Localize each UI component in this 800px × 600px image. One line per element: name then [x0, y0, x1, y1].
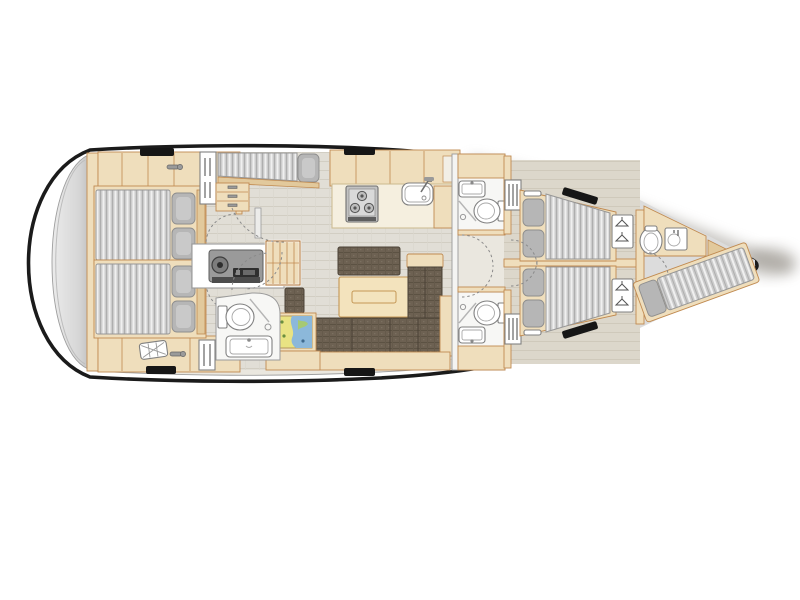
faucet-base: [424, 177, 434, 181]
utility-wall: [255, 208, 261, 238]
pillow: [523, 300, 544, 327]
stove-controls: [348, 217, 376, 221]
galley: [330, 150, 460, 228]
corridor-wall: [458, 230, 505, 235]
salon-table: [339, 277, 409, 317]
shelf-tray: [524, 330, 541, 335]
sofa-armrest: [407, 254, 443, 268]
winch-handle-icon: [167, 164, 183, 169]
wardrobe: [612, 215, 633, 248]
faucet-icon: [247, 338, 251, 342]
sofa-bottom: [316, 318, 442, 353]
hanging-locker: [199, 340, 215, 370]
bathroom-sink: [226, 336, 272, 357]
bow-sink: [665, 228, 687, 250]
pillow-highlight: [176, 197, 191, 220]
hanging-locker: [200, 152, 216, 204]
bathroom-sink: [459, 327, 485, 343]
boarding-ladder-icon: [139, 340, 168, 360]
chart-mark: [280, 320, 283, 323]
bathroom-sink: [459, 181, 485, 197]
head-shelf: [458, 154, 505, 178]
deck-hatch: [344, 147, 375, 155]
toilet-icon: [474, 199, 505, 223]
chart-map: [276, 316, 312, 348]
single-berth-mattress: [218, 153, 297, 181]
chart-mark: [301, 339, 304, 342]
pillow-highlight: [302, 158, 315, 178]
galley-lockers: [330, 150, 460, 186]
salon-bottom-cabinet: [300, 352, 450, 370]
stove: [346, 186, 378, 222]
drawer-handle: [228, 195, 237, 197]
bench-settee: [338, 247, 400, 275]
drawer-handle: [228, 204, 237, 206]
deck-hatch: [146, 366, 176, 374]
floorplan-svg: Sailing yacht interior layout plan, top …: [0, 0, 800, 600]
shelf-tray: [524, 191, 541, 196]
toilet-icon: [474, 301, 505, 325]
faucet-icon: [470, 339, 473, 342]
drawer-handle: [228, 186, 237, 188]
pillow-highlight: [176, 305, 191, 328]
wardrobe: [612, 279, 633, 312]
fwd-head-starboard: [458, 292, 505, 370]
deck-hatch: [140, 148, 174, 156]
pillow-highlight: [176, 232, 191, 255]
yacht-floorplan-canvas: Sailing yacht interior layout plan, top …: [0, 0, 800, 600]
companionway: [266, 241, 300, 285]
winch-handle-icon: [170, 351, 186, 356]
main-bulkhead: [452, 154, 458, 370]
toilet-icon: [218, 304, 254, 330]
stool: [285, 288, 304, 313]
double-bed-mattress: [96, 264, 170, 334]
pillow: [523, 199, 544, 226]
engine: [209, 250, 263, 283]
chart-water-area: [291, 316, 312, 348]
faucet-icon: [470, 181, 473, 184]
chart-mark: [282, 334, 285, 337]
deck-hatch: [344, 368, 375, 376]
fwd-head-port: [458, 154, 505, 232]
double-bed-mattress: [96, 190, 170, 260]
head-shelf: [458, 346, 505, 370]
pillow-highlight: [176, 270, 191, 293]
